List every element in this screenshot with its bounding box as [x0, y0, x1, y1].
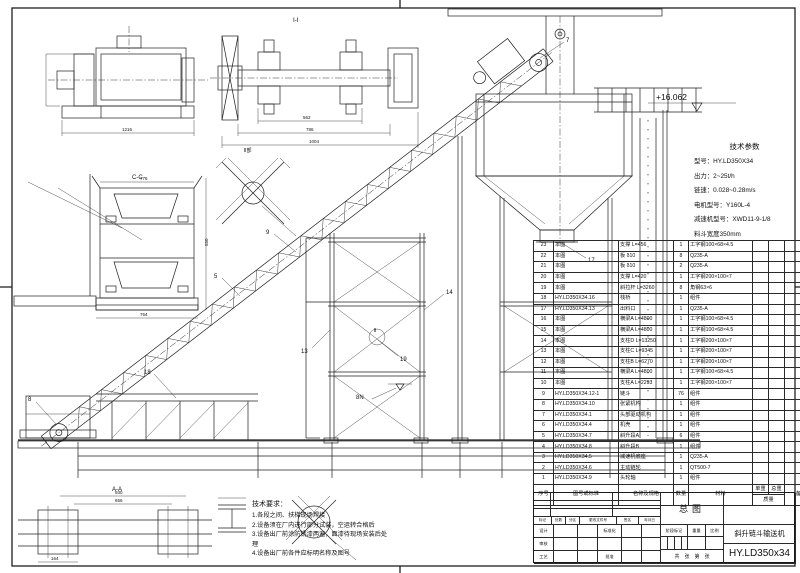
parts-list-row: 18 HY.LD350X34.16 栈桥 1 组件 [534, 293, 800, 304]
part-total-weight [769, 463, 785, 474]
part-unit-weight [753, 399, 769, 410]
check-label: 审核 [534, 538, 554, 551]
part-no: 17 [534, 304, 554, 315]
revision-label: 处数 [552, 517, 566, 525]
process-label: 工艺 [534, 551, 554, 564]
part-drawing-no: HY.LD350X34.1 [554, 410, 619, 421]
tech-param-line: 链速：0.028~0.28m/s [694, 184, 795, 199]
part-unit-weight [753, 442, 769, 453]
part-no: 3 [534, 452, 554, 463]
part-no: 1 [534, 474, 554, 485]
tech-requirement-line: 理 [252, 540, 533, 550]
parts-list-row: 8 HY.LD350X34.10 张紧机构 1 组件 [534, 399, 800, 410]
part-drawing-no: HY.LD350X34.10 [554, 399, 619, 410]
dim-label: 164 [51, 556, 59, 561]
part-no: 13 [534, 346, 554, 357]
part-unit-weight [753, 421, 769, 432]
part-drawing-no: HY.LD350X34.9 [554, 474, 619, 485]
part-material: 组件 [689, 293, 753, 304]
parts-list-table: 23 本图 支撑 L=456 1 工字钢100×68×4.5 22 本图 板 δ… [533, 240, 800, 506]
part-no: 4 [534, 442, 554, 453]
stage-row: 阶段标记 重量 比例 [661, 525, 724, 537]
part-total-weight [769, 241, 785, 252]
trough-section-view: C-C 776 550 764 [14, 174, 209, 318]
part-qty: 76 [674, 389, 689, 400]
tech-param-line: 减速机型号：XWD11-9-1/8 [694, 213, 795, 228]
part-note [785, 463, 800, 474]
elevation-marker: +16.062 [648, 92, 736, 111]
part-note [785, 272, 800, 283]
part-unit-weight [753, 336, 769, 347]
part-total-weight [769, 399, 785, 410]
part-material: 工字钢100×68×4.5 [689, 325, 753, 336]
part-name: 斜拉杆 L=3260 [619, 283, 674, 294]
part-no: 6 [534, 421, 554, 432]
part-name: 减速机底座 [619, 452, 674, 463]
part-qty: 1 [674, 452, 689, 463]
part-material: 工字钢200×100×7 [689, 272, 753, 283]
revision-label: 更改文件号 [580, 517, 617, 525]
tech-requirement-line: 4.设备出厂前各件应标明名称及图号 [252, 549, 533, 559]
anchor-label: 8N [356, 384, 412, 401]
part-name: 板 δ10 [619, 262, 674, 273]
part-drawing-no: 本图 [554, 272, 619, 283]
part-note [785, 304, 800, 315]
part-unit-weight [753, 474, 769, 485]
part-drawing-no: 本图 [554, 251, 619, 262]
part-qty: 8 [674, 251, 689, 262]
part-unit-weight [753, 346, 769, 357]
part-total-weight [769, 357, 785, 368]
part-total-weight [769, 336, 785, 347]
part-total-weight [769, 251, 785, 262]
part-qty: 2 [674, 262, 689, 273]
part-total-weight [769, 325, 785, 336]
part-material: Q235-A [689, 452, 753, 463]
dim-label: 776 [140, 176, 148, 181]
balloon: 5 [214, 274, 218, 280]
parts-list-row: 20 本图 支撑 L=420 1 工字钢200×100×7 [534, 272, 800, 283]
part-material: 组件 [689, 431, 753, 442]
part-name: 机壳 [619, 421, 674, 432]
part-drawing-no: HY.LD350X34.8 [554, 442, 619, 453]
part-name: 头轮轴 [619, 474, 674, 485]
part-qty: 6 [674, 431, 689, 442]
part-note [785, 357, 800, 368]
stage-mark-label: 阶段标记 [661, 525, 688, 537]
balloon: 19 [400, 357, 407, 363]
part-name: 斜升段A [619, 431, 674, 442]
part-unit-weight [753, 431, 769, 442]
part-qty: 1 [674, 325, 689, 336]
detail-label: Ⅱ部 [244, 147, 251, 154]
part-no: 9 [534, 389, 554, 400]
part-drawing-no: 本图 [554, 336, 619, 347]
dim-label: 764 [140, 312, 148, 317]
parts-list-row: 15 本图 横梁A L=4800 1 工字钢100×68×4.5 [534, 325, 800, 336]
part-drawing-no: HY.LD350X34.7 [554, 431, 619, 442]
drawing-number: HY.LD350x34 [724, 544, 796, 564]
part-drawing-no: 本图 [554, 262, 619, 273]
trestle [96, 394, 258, 440]
part-note [785, 431, 800, 442]
tech-requirement-line: 3.设备出厂前涂防锈漆两遍，面漆待现场安装后处 [252, 530, 533, 540]
shaft-section-view: Ⅰ-Ⅰ 562 786 1004 [210, 18, 418, 148]
tech-params-lines: 型号：HY.LD350X34出力：2~25t/h链速：0.028~0.28m/s… [694, 155, 795, 242]
part-unit-weight [753, 293, 769, 304]
part-unit-weight [753, 389, 769, 400]
revision-label: 签名 [617, 517, 639, 525]
part-note [785, 346, 800, 357]
part-name: 主动链轮 [619, 463, 674, 474]
parts-list-row: 13 本图 支柱C L=9345 1 工字钢200×100×7 [534, 346, 800, 357]
part-note [785, 389, 800, 400]
part-drawing-no: HY.LD350X34.12-1 [554, 389, 619, 400]
parts-list-row: 7 HY.LD350X34.1 头部驱动机构 1 组件 [534, 410, 800, 421]
part-material: Q235-A [689, 251, 753, 262]
part-total-weight [769, 293, 785, 304]
tech-requirement-line: 1.各段之间、扶梯现场焊接 [252, 511, 533, 521]
anchor-text: 8N [356, 395, 364, 401]
part-qty: 1 [674, 293, 689, 304]
part-name: 支柱D L=13250 [619, 336, 674, 347]
part-material: 组件 [689, 410, 753, 421]
part-unit-weight [753, 368, 769, 379]
part-qty: 8 [674, 283, 689, 294]
part-total-weight [769, 421, 785, 432]
part-unit-weight [753, 272, 769, 283]
part-qty: 1 [674, 410, 689, 421]
revision-label: 分区 [566, 517, 580, 525]
dim-label: 930 [115, 490, 123, 495]
head-drive-view: 1216 [46, 26, 208, 136]
balloon: 9 [266, 230, 270, 236]
part-note [785, 410, 800, 421]
title-block-spare-cell [724, 493, 796, 525]
part-no: 7 [534, 410, 554, 421]
part-material: 工字钢100×68×4.5 [689, 241, 753, 252]
part-qty: 1 [674, 272, 689, 283]
parts-list-row: 21 本图 板 δ10 2 Q235-A [534, 262, 800, 273]
part-qty: 1 [674, 315, 689, 326]
parts-list-row: 4 HY.LD350X34.8 斜升段B 1 组件 [534, 442, 800, 453]
parts-list-row: 14 本图 支柱D L=13250 1 工字钢200×100×7 [534, 336, 800, 347]
parts-list-row: 1 HY.LD350X34.9 头轮轴 1 组件 [534, 474, 800, 485]
tech-param-line: 型号：HY.LD350X34 [694, 155, 795, 170]
part-name: 张紧机构 [619, 399, 674, 410]
part-total-weight [769, 431, 785, 442]
base-section-view: A-A 930 656 164 [18, 487, 212, 562]
part-name: 栈桥 [619, 293, 674, 304]
part-name: 支撑 L=456 [619, 241, 674, 252]
part-drawing-no: 本图 [554, 378, 619, 389]
tech-requirement-line: 2.设备须在厂内进行部分试装，空运转合格后 [252, 521, 533, 531]
part-drawing-no: 本图 [554, 325, 619, 336]
approve-label: 批准 [598, 551, 622, 564]
signature-grid: 设计 标准化 审核 工艺 批准 [534, 525, 661, 564]
tech-param-line: 出力：2~25t/h [694, 170, 795, 185]
revision-label: 标记 [534, 517, 552, 525]
part-note [785, 283, 800, 294]
parts-list-row: 17 HY.LD350X34.13 出料口 1 Q235-A [534, 304, 800, 315]
parts-list-row: 5 HY.LD350X34.7 斜升段A 6 组件 [534, 431, 800, 442]
part-name: 支柱C L=9345 [619, 346, 674, 357]
part-name: 横梁A L=4800 [619, 315, 674, 326]
tech-requirements: 技术要求： 1.各段之间、扶梯现场焊接2.设备须在厂内进行部分试装，空运转合格后… [252, 499, 533, 559]
tech-param-line: 电机型号：Y160L-4 [694, 199, 795, 214]
part-drawing-no: 本图 [554, 241, 619, 252]
balloon: 14 [446, 290, 453, 296]
part-unit-weight [753, 251, 769, 262]
part-note [785, 378, 800, 389]
part-unit-weight [753, 262, 769, 273]
part-drawing-no: HY.LD350X34.13 [554, 304, 619, 315]
part-unit-weight [753, 452, 769, 463]
part-no: 21 [534, 262, 554, 273]
part-material: 组件 [689, 442, 753, 453]
balloon: 7 [566, 38, 570, 44]
part-drawing-no: 本图 [554, 315, 619, 326]
part-total-weight [769, 442, 785, 453]
part-drawing-no: HY.LD350X34.5 [554, 452, 619, 463]
part-qty: 1 [674, 421, 689, 432]
part-total-weight [769, 378, 785, 389]
part-note [785, 452, 800, 463]
parts-list-row: 22 本图 板 δ10 8 Q235-A [534, 251, 800, 262]
parts-list-row: 11 本图 横梁A L=4800 1 工字钢100×68×4.5 [534, 368, 800, 379]
part-no: 16 [534, 315, 554, 326]
tall-column [452, 136, 468, 443]
part-total-weight [769, 272, 785, 283]
tech-requirements-title: 技术要求： [252, 499, 533, 509]
part-no: 19 [534, 283, 554, 294]
parts-list-row: 2 HY.LD350X34.6 主动链轮 1 QT500-7 [534, 463, 800, 474]
part-note [785, 262, 800, 273]
part-material: QT500-7 [689, 463, 753, 474]
scale-label: 比例 [706, 525, 724, 537]
revision-label: 年月日 [639, 517, 661, 525]
support-tower: Ⅱ [324, 233, 428, 443]
parts-list-row: 6 HY.LD350X34.4 机壳 1 组件 [534, 421, 800, 432]
parts-list-row: 3 HY.LD350X34.5 减速机底座 1 Q235-A [534, 452, 800, 463]
part-note [785, 474, 800, 485]
parts-list-row: 9 HY.LD350X34.12-1 链斗 76 组件 [534, 389, 800, 400]
part-unit-weight [753, 325, 769, 336]
dim-label: 562 [303, 115, 311, 120]
part-drawing-no: 本图 [554, 368, 619, 379]
part-total-weight [769, 389, 785, 400]
part-total-weight [769, 410, 785, 421]
part-material: 工字钢200×100×7 [689, 336, 753, 347]
part-name: 链斗 [619, 389, 674, 400]
part-qty: 1 [674, 378, 689, 389]
stage-mark-boxes [661, 537, 724, 550]
part-name: 支柱A L=2293 [619, 378, 674, 389]
part-material: 工字钢100×68×4.5 [689, 315, 753, 326]
dim-label: 786 [306, 127, 314, 132]
part-name: 支柱B L=6270 [619, 357, 674, 368]
part-no: 23 [534, 241, 554, 252]
elevation-value: +16.062 [656, 92, 687, 102]
part-note [785, 421, 800, 432]
part-no: 10 [534, 378, 554, 389]
part-no: 11 [534, 368, 554, 379]
part-qty: 1 [674, 442, 689, 453]
parts-list-row: 10 本图 支柱A L=2293 1 工字钢200×100×7 [534, 378, 800, 389]
part-drawing-no: HY.LD350X34.16 [554, 293, 619, 304]
part-no: 18 [534, 293, 554, 304]
part-material: 组件 [689, 399, 753, 410]
part-material: Q235-A [689, 304, 753, 315]
part-total-weight [769, 262, 785, 273]
part-qty: 1 [674, 336, 689, 347]
part-no: 15 [534, 325, 554, 336]
standardization-label: 标准化 [598, 525, 622, 538]
part-drawing-no: HY.LD350X34.6 [554, 463, 619, 474]
part-balloons: 7 9 5 18 14 13 19 17 8 [28, 38, 595, 424]
part-qty: 1 [674, 357, 689, 368]
title-block: 标记处数分区更改文件号签名年月日 设计 标准化 审核 工艺 批准 总图 阶段标记… [533, 492, 795, 563]
title-block-spare-rows [534, 493, 661, 517]
balloon: 8 [28, 397, 32, 403]
part-total-weight [769, 452, 785, 463]
ibeam-detail-view [218, 498, 246, 532]
part-no: 5 [534, 431, 554, 442]
part-qty: 1 [674, 474, 689, 485]
part-total-weight [769, 474, 785, 485]
dim-label: 1004 [309, 139, 320, 144]
part-no: 20 [534, 272, 554, 283]
brace-detail-view: Ⅱ部 [216, 147, 296, 236]
part-unit-weight [753, 283, 769, 294]
part-drawing-no: 本图 [554, 357, 619, 368]
part-no: 8 [534, 399, 554, 410]
engineering-drawing-canvas: 1216 Ⅰ-Ⅰ 562 786 1004 Ⅱ部 [0, 0, 800, 573]
part-name: 板 δ10 [619, 251, 674, 262]
part-material: 工字钢100×68×4.5 [689, 368, 753, 379]
part-unit-weight [753, 304, 769, 315]
balloon: 18 [144, 370, 151, 376]
part-drawing-no: 本图 [554, 283, 619, 294]
parts-list-row: 16 本图 横梁A L=4800 1 工字钢100×68×4.5 [534, 315, 800, 326]
sheet-count: 共 张 第 张 [661, 550, 724, 564]
dim-label: 656 [115, 498, 123, 503]
part-material: 组件 [689, 421, 753, 432]
part-drawing-no: HY.LD350X34.4 [554, 421, 619, 432]
parts-list-rows: 23 本图 支撑 L=456 1 工字钢100×68×4.5 22 本图 板 δ… [534, 241, 800, 485]
balloon: 13 [301, 349, 308, 355]
part-unit-weight [753, 378, 769, 389]
view-title: 总图 [661, 493, 724, 525]
part-no: 2 [534, 463, 554, 474]
part-note [785, 251, 800, 262]
weight-label: 重量 [688, 525, 706, 537]
part-name: 头部驱动机构 [619, 410, 674, 421]
part-total-weight [769, 346, 785, 357]
tech-requirements-lines: 1.各段之间、扶梯现场焊接2.设备须在厂内进行部分试装，空运转合格后3.设备出厂… [252, 511, 533, 559]
part-name: 出料口 [619, 304, 674, 315]
part-no: 14 [534, 336, 554, 347]
part-total-weight [769, 368, 785, 379]
parts-list-row: 23 本图 支撑 L=456 1 工字钢100×68×4.5 [534, 241, 800, 252]
part-note [785, 442, 800, 453]
part-name: 斜升段B [619, 442, 674, 453]
part-material: 工字钢200×100×7 [689, 357, 753, 368]
part-total-weight [769, 283, 785, 294]
part-unit-weight [753, 463, 769, 474]
part-note [785, 293, 800, 304]
part-name: 支撑 L=420 [619, 272, 674, 283]
part-note [785, 315, 800, 326]
part-qty: 1 [674, 304, 689, 315]
part-qty: 1 [674, 241, 689, 252]
product-name: 斜升链斗输送机 [724, 525, 796, 544]
dim-label: 1216 [122, 127, 133, 132]
design-label: 设计 [534, 525, 554, 538]
part-name: 横梁A L=4800 [619, 325, 674, 336]
part-drawing-no: 本图 [554, 346, 619, 357]
part-no: 12 [534, 357, 554, 368]
part-unit-weight [753, 357, 769, 368]
part-unit-weight [753, 410, 769, 421]
part-note [785, 399, 800, 410]
tech-params-panel: 技术参数 型号：HY.LD350X34出力：2~25t/h链速：0.028~0.… [694, 141, 795, 242]
part-qty: 1 [674, 463, 689, 474]
part-qty: 1 [674, 399, 689, 410]
parts-list-row: 12 本图 支柱B L=6270 1 工字钢200×100×7 [534, 357, 800, 368]
part-material: 角钢63×6 [689, 283, 753, 294]
parts-list-row: 19 本图 斜拉杆 L=3260 8 角钢63×6 [534, 283, 800, 294]
part-no: 22 [534, 251, 554, 262]
section-label: Ⅰ-Ⅰ [293, 18, 299, 24]
part-unit-weight [753, 315, 769, 326]
part-total-weight [769, 304, 785, 315]
part-name: 横梁A L=4800 [619, 368, 674, 379]
part-qty: 1 [674, 368, 689, 379]
part-note [785, 241, 800, 252]
detail-callout: Ⅱ [374, 328, 376, 334]
part-material: 工字钢200×100×7 [689, 346, 753, 357]
part-note [785, 368, 800, 379]
part-total-weight [769, 315, 785, 326]
tech-params-title: 技术参数 [694, 141, 795, 152]
part-material: 工字钢200×100×7 [689, 378, 753, 389]
part-material: 组件 [689, 389, 753, 400]
dim-label: 550 [204, 238, 209, 246]
part-note [785, 325, 800, 336]
part-material: Q235-A [689, 262, 753, 273]
part-qty: 1 [674, 346, 689, 357]
part-material: 组件 [689, 474, 753, 485]
part-note [785, 336, 800, 347]
revision-header-row: 标记处数分区更改文件号签名年月日 [534, 517, 661, 525]
part-unit-weight [753, 241, 769, 252]
